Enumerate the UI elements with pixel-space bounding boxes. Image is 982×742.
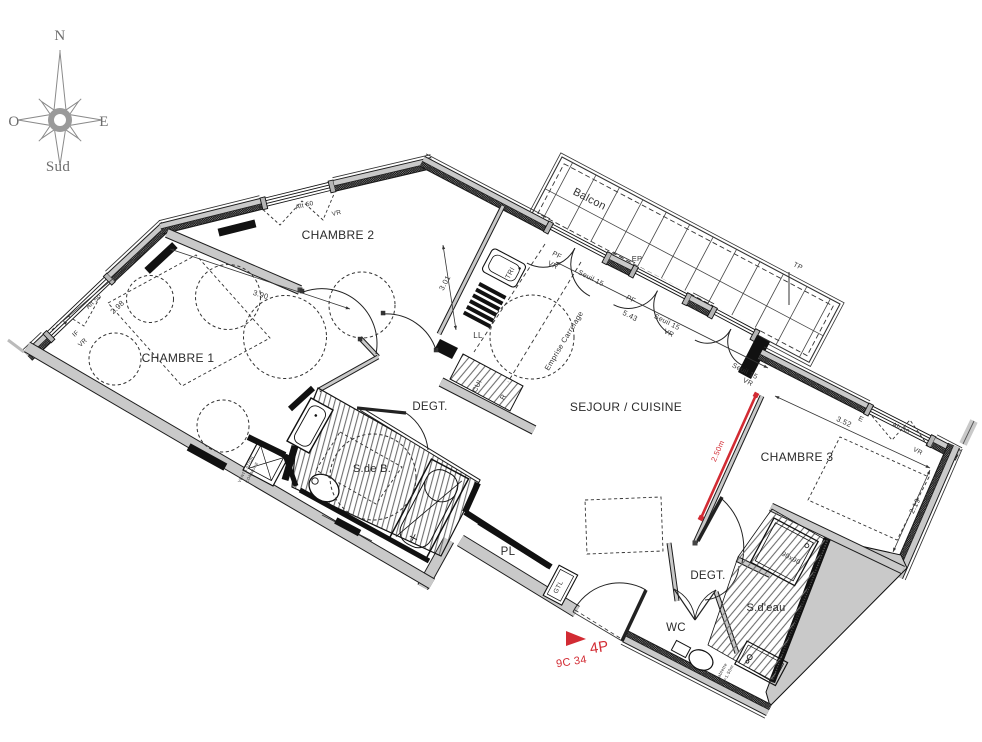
svg-text:DEGT.: DEGT.: [412, 401, 447, 413]
svg-text:CHAMBRE 2: CHAMBRE 2: [302, 228, 375, 242]
svg-text:EP: EP: [632, 254, 643, 263]
svg-text:DEGT.: DEGT.: [690, 570, 725, 582]
svg-text:PL: PL: [501, 546, 516, 558]
svg-text:CHAMBRE 3: CHAMBRE 3: [761, 450, 834, 464]
svg-text:S.d'eau: S.d'eau: [746, 602, 785, 614]
svg-text:S.de B.: S.de B.: [353, 463, 391, 475]
svg-text:E: E: [99, 114, 108, 130]
svg-text:O: O: [8, 114, 19, 130]
svg-text:Sud: Sud: [46, 159, 70, 175]
svg-text:4P: 4P: [589, 638, 610, 658]
svg-text:CHAMBRE 1: CHAMBRE 1: [142, 351, 215, 365]
svg-text:LL: LL: [473, 331, 483, 340]
svg-text:SEJOUR / CUISINE: SEJOUR / CUISINE: [570, 400, 682, 414]
svg-text:N: N: [54, 28, 65, 44]
svg-text:WC: WC: [666, 622, 686, 634]
